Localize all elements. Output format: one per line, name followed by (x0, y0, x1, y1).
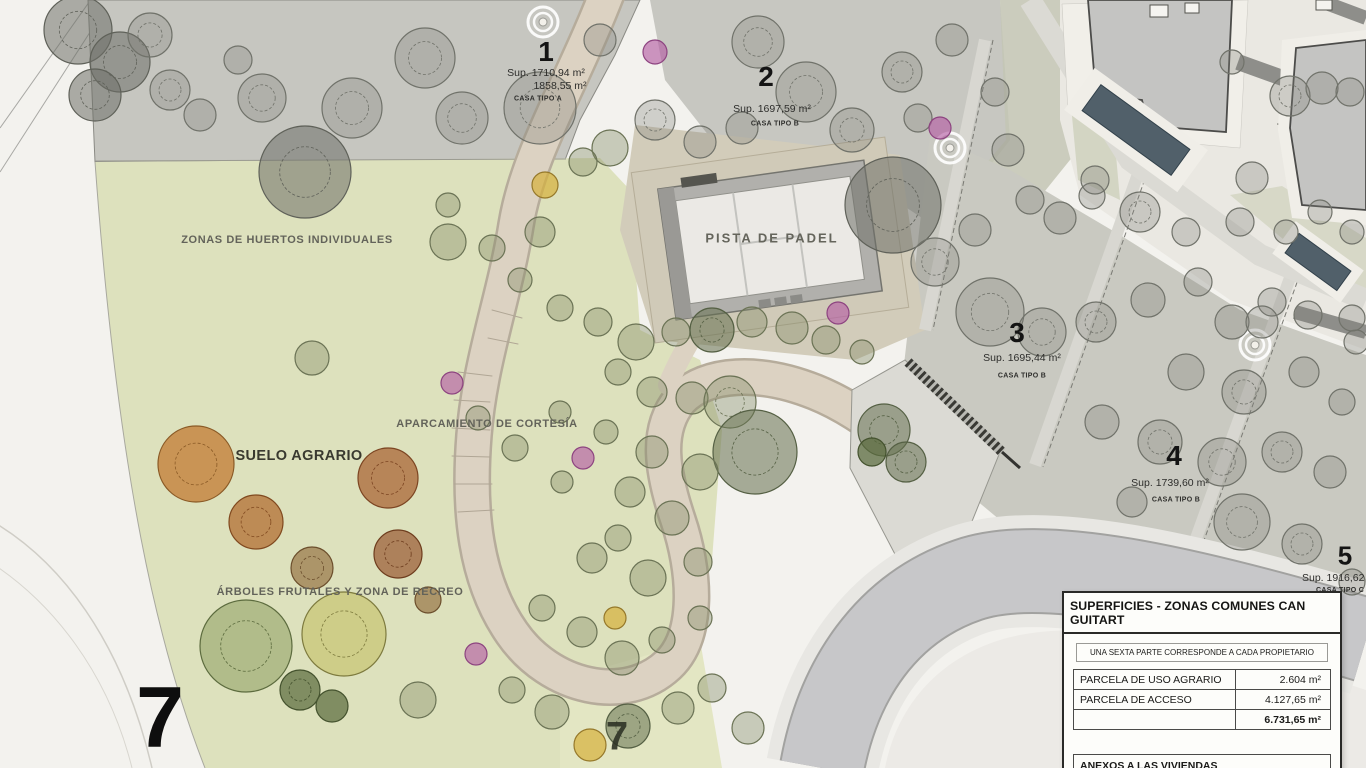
tree-icon (229, 495, 283, 549)
surfaces-table: PARCELA DE USO AGRARIO 2.604 m² PARCELA … (1073, 669, 1331, 730)
table-row: PARCELA DE USO AGRARIO 2.604 m² (1074, 670, 1331, 690)
plot-3-type: CASA TIPO B (998, 373, 1046, 380)
plot-1-type: CASA TIPO A (514, 96, 562, 103)
tree-icon (322, 78, 382, 138)
row-label: PARCELA DE ACCESO (1074, 690, 1236, 710)
tree-icon (1081, 166, 1109, 194)
row-label (1074, 710, 1236, 730)
tree-icon (584, 24, 616, 56)
tree-icon (1308, 200, 1332, 224)
tree-icon (911, 238, 959, 286)
plot-3-number: 3 (1009, 317, 1025, 349)
tree-icon (280, 670, 320, 710)
tree-icon (929, 117, 951, 139)
zone-label-suelo-agrario: SUELO AGRARIO (235, 448, 362, 464)
tree-icon (936, 24, 968, 56)
tree-icon (605, 641, 639, 675)
tree-icon (1226, 208, 1254, 236)
tree-icon (69, 69, 121, 121)
tree-icon (981, 78, 1009, 106)
tree-icon (316, 690, 348, 722)
tree-icon (1018, 308, 1066, 356)
tree-icon (238, 74, 286, 122)
plot-1-area-2: 1858,55 m² (533, 80, 586, 92)
tree-icon (291, 547, 333, 589)
tree-icon (374, 530, 422, 578)
tree-icon (502, 435, 528, 461)
row-value: 2.604 m² (1235, 670, 1330, 690)
legend-table: SUPERFICIES - ZONAS COMUNES CAN GUITART … (1062, 591, 1342, 768)
tree-icon (649, 627, 675, 653)
tree-icon (499, 677, 525, 703)
tree-icon (845, 157, 941, 253)
tree-icon (1120, 192, 1160, 232)
plot-4-type: CASA TIPO B (1152, 497, 1200, 504)
table-row: PARCELA DE ACCESO 4.127,65 m² (1074, 690, 1331, 710)
tree-icon (430, 224, 466, 260)
plot-3-area: Sup. 1695,44 m² (983, 352, 1061, 364)
plot-5-area: Sup. 1916,62 (1302, 572, 1364, 584)
tree-icon (635, 100, 675, 140)
tree-icon (259, 126, 351, 218)
tree-icon (812, 326, 840, 354)
tree-icon (662, 318, 690, 346)
tree-icon (732, 712, 764, 744)
table-row-total: 6.731,65 m² (1074, 710, 1331, 730)
house-b-roof (1290, 40, 1366, 210)
tree-icon (688, 606, 712, 630)
tree-icon (508, 268, 532, 292)
plot-2-area: Sup. 1697,59 m² (733, 103, 811, 115)
plot-4-area: Sup. 1739,60 m² (1131, 477, 1209, 489)
tree-icon (1220, 50, 1244, 74)
tree-icon (395, 28, 455, 88)
plot-2-type: CASA TIPO B (751, 121, 799, 128)
legend-subtitle: UNA SEXTA PARTE CORRESPONDE A CADA PROPI… (1076, 643, 1328, 662)
tree-icon (569, 148, 597, 176)
plot-5-number: 5 (1338, 541, 1352, 572)
tree-icon (295, 341, 329, 375)
tree-icon (150, 70, 190, 110)
tree-icon (698, 674, 726, 702)
tree-icon (1344, 330, 1366, 354)
tree-icon (655, 501, 689, 535)
plot-4-number: 4 (1166, 440, 1182, 472)
tree-icon (436, 92, 488, 144)
row-value: 4.127,65 m² (1235, 690, 1330, 710)
tree-icon (1184, 268, 1212, 296)
tree-icon (858, 438, 886, 466)
tree-icon (1168, 354, 1204, 390)
tree-icon (532, 172, 558, 198)
tree-icon (1172, 218, 1200, 246)
tree-icon (594, 420, 618, 444)
tree-icon (1085, 405, 1119, 439)
tree-icon (567, 617, 597, 647)
tree-icon (1246, 306, 1278, 338)
tree-icon (886, 442, 926, 482)
tree-icon (465, 643, 487, 665)
tree-icon (1236, 162, 1268, 194)
site-plan-page: 1 Sup. 1710,94 m² 1858,55 m² CASA TIPO A… (0, 0, 1366, 768)
tree-icon (630, 560, 666, 596)
tree-icon (572, 447, 594, 469)
tree-icon (682, 454, 718, 490)
tree-icon (551, 471, 573, 493)
tree-icon (1306, 72, 1338, 104)
tree-icon (436, 193, 460, 217)
tree-icon (400, 682, 436, 718)
plot-7-number-large: 7 (136, 669, 184, 768)
tree-icon (158, 426, 234, 502)
tree-icon (184, 99, 216, 131)
tree-icon (690, 308, 734, 352)
tree-icon (676, 382, 708, 414)
tree-icon (662, 692, 694, 724)
tree-icon (1131, 283, 1165, 317)
plot-2-number: 2 (758, 61, 774, 93)
plot-1-number: 1 (538, 36, 554, 68)
tree-icon (200, 600, 292, 692)
anexos-table: ANEXOS A LAS VIVIENDAS ACCESO RODADO PRI… (1073, 754, 1331, 768)
tree-icon (1215, 305, 1249, 339)
tree-icon (1117, 487, 1147, 517)
tree-icon (1314, 456, 1346, 488)
tree-icon (1274, 220, 1298, 244)
tree-icon (1214, 494, 1270, 550)
plot-1-area: Sup. 1710,94 m² (507, 67, 585, 79)
row-label: PARCELA DE USO AGRARIO (1074, 670, 1236, 690)
tree-icon (604, 607, 626, 629)
total-value: 6.731,65 m² (1235, 710, 1330, 730)
tree-icon (1282, 524, 1322, 564)
tree-icon (358, 448, 418, 508)
tree-icon (776, 312, 808, 344)
tree-icon (1270, 76, 1310, 116)
tree-icon (904, 104, 932, 132)
tree-icon (726, 112, 758, 144)
tree-icon (577, 543, 607, 573)
tree-icon (992, 134, 1024, 166)
tree-icon (302, 592, 386, 676)
tree-icon (529, 595, 555, 621)
tree-icon (1340, 220, 1364, 244)
tree-icon (441, 372, 463, 394)
tree-icon (547, 295, 573, 321)
tree-icon (479, 235, 505, 261)
tree-icon (224, 46, 252, 74)
tree-icon (618, 324, 654, 360)
tree-icon (850, 340, 874, 364)
tree-icon (1016, 186, 1044, 214)
zone-label-arboles-frutales: ÁRBOLES FRUTALES Y ZONA DE RECREO (217, 586, 464, 598)
tree-icon (713, 410, 797, 494)
tree-icon (882, 52, 922, 92)
tree-icon (605, 359, 631, 385)
tree-icon (959, 214, 991, 246)
tree-icon (636, 436, 668, 468)
tree-icon (684, 126, 716, 158)
tree-icon (525, 217, 555, 247)
plot-7-number-small: 7 (606, 715, 628, 760)
tree-icon (1222, 370, 1266, 414)
tree-icon (615, 477, 645, 507)
anexos-title: ANEXOS A LAS VIVIENDAS (1074, 755, 1331, 768)
tree-icon (643, 40, 667, 64)
legend-title: SUPERFICIES - ZONAS COMUNES CAN GUITART (1064, 593, 1340, 634)
tree-icon (584, 308, 612, 336)
tree-icon (637, 377, 667, 407)
anexos-header-row: ANEXOS A LAS VIVIENDAS (1074, 755, 1331, 768)
tree-icon (827, 302, 849, 324)
tree-icon (535, 695, 569, 729)
tree-icon (1289, 357, 1319, 387)
tree-icon (830, 108, 874, 152)
padel-court-label: PISTA DE PADEL (705, 231, 838, 246)
tree-icon (684, 548, 712, 576)
tree-icon (1076, 302, 1116, 342)
tree-icon (1339, 305, 1365, 331)
tree-icon (1044, 202, 1076, 234)
zone-label-huertos: ZONAS DE HUERTOS INDIVIDUALES (181, 234, 393, 246)
tree-icon (574, 729, 606, 761)
tree-icon (1294, 301, 1322, 329)
tree-icon (1329, 389, 1355, 415)
tree-icon (1336, 78, 1364, 106)
tree-icon (128, 13, 172, 57)
tree-icon (737, 307, 767, 337)
tree-icon (1262, 432, 1302, 472)
zone-label-aparcamiento: APARCAMIENTO DE CORTESÍA (396, 418, 577, 430)
tree-icon (605, 525, 631, 551)
